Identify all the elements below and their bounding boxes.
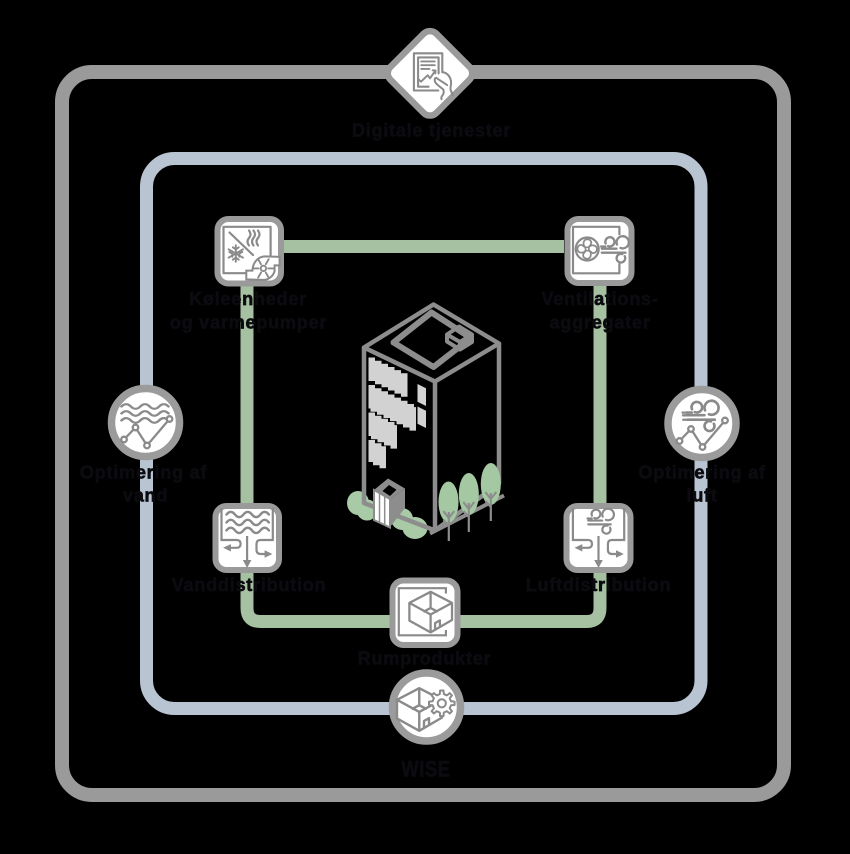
svg-text:Ventilations-: Ventilations- — [541, 289, 658, 309]
svg-text:Luftdistribution: Luftdistribution — [526, 575, 672, 595]
svg-text:Køleenheder: Køleenheder — [189, 289, 307, 309]
svg-text:WISE: WISE — [401, 758, 450, 782]
svg-text:Rumprodukter: Rumprodukter — [358, 648, 492, 668]
svg-text:vand: vand — [123, 486, 168, 506]
svg-text:Digitale tjenester: Digitale tjenester — [352, 120, 511, 140]
svg-text:Optimering af: Optimering af — [80, 462, 208, 482]
svg-text:luft: luft — [686, 486, 717, 506]
svg-text:og varmepumper: og varmepumper — [170, 312, 327, 332]
svg-text:aggregater: aggregater — [549, 312, 650, 332]
svg-text:Optimering af: Optimering af — [638, 462, 766, 482]
svg-text:Vanddistribution: Vanddistribution — [172, 575, 327, 595]
